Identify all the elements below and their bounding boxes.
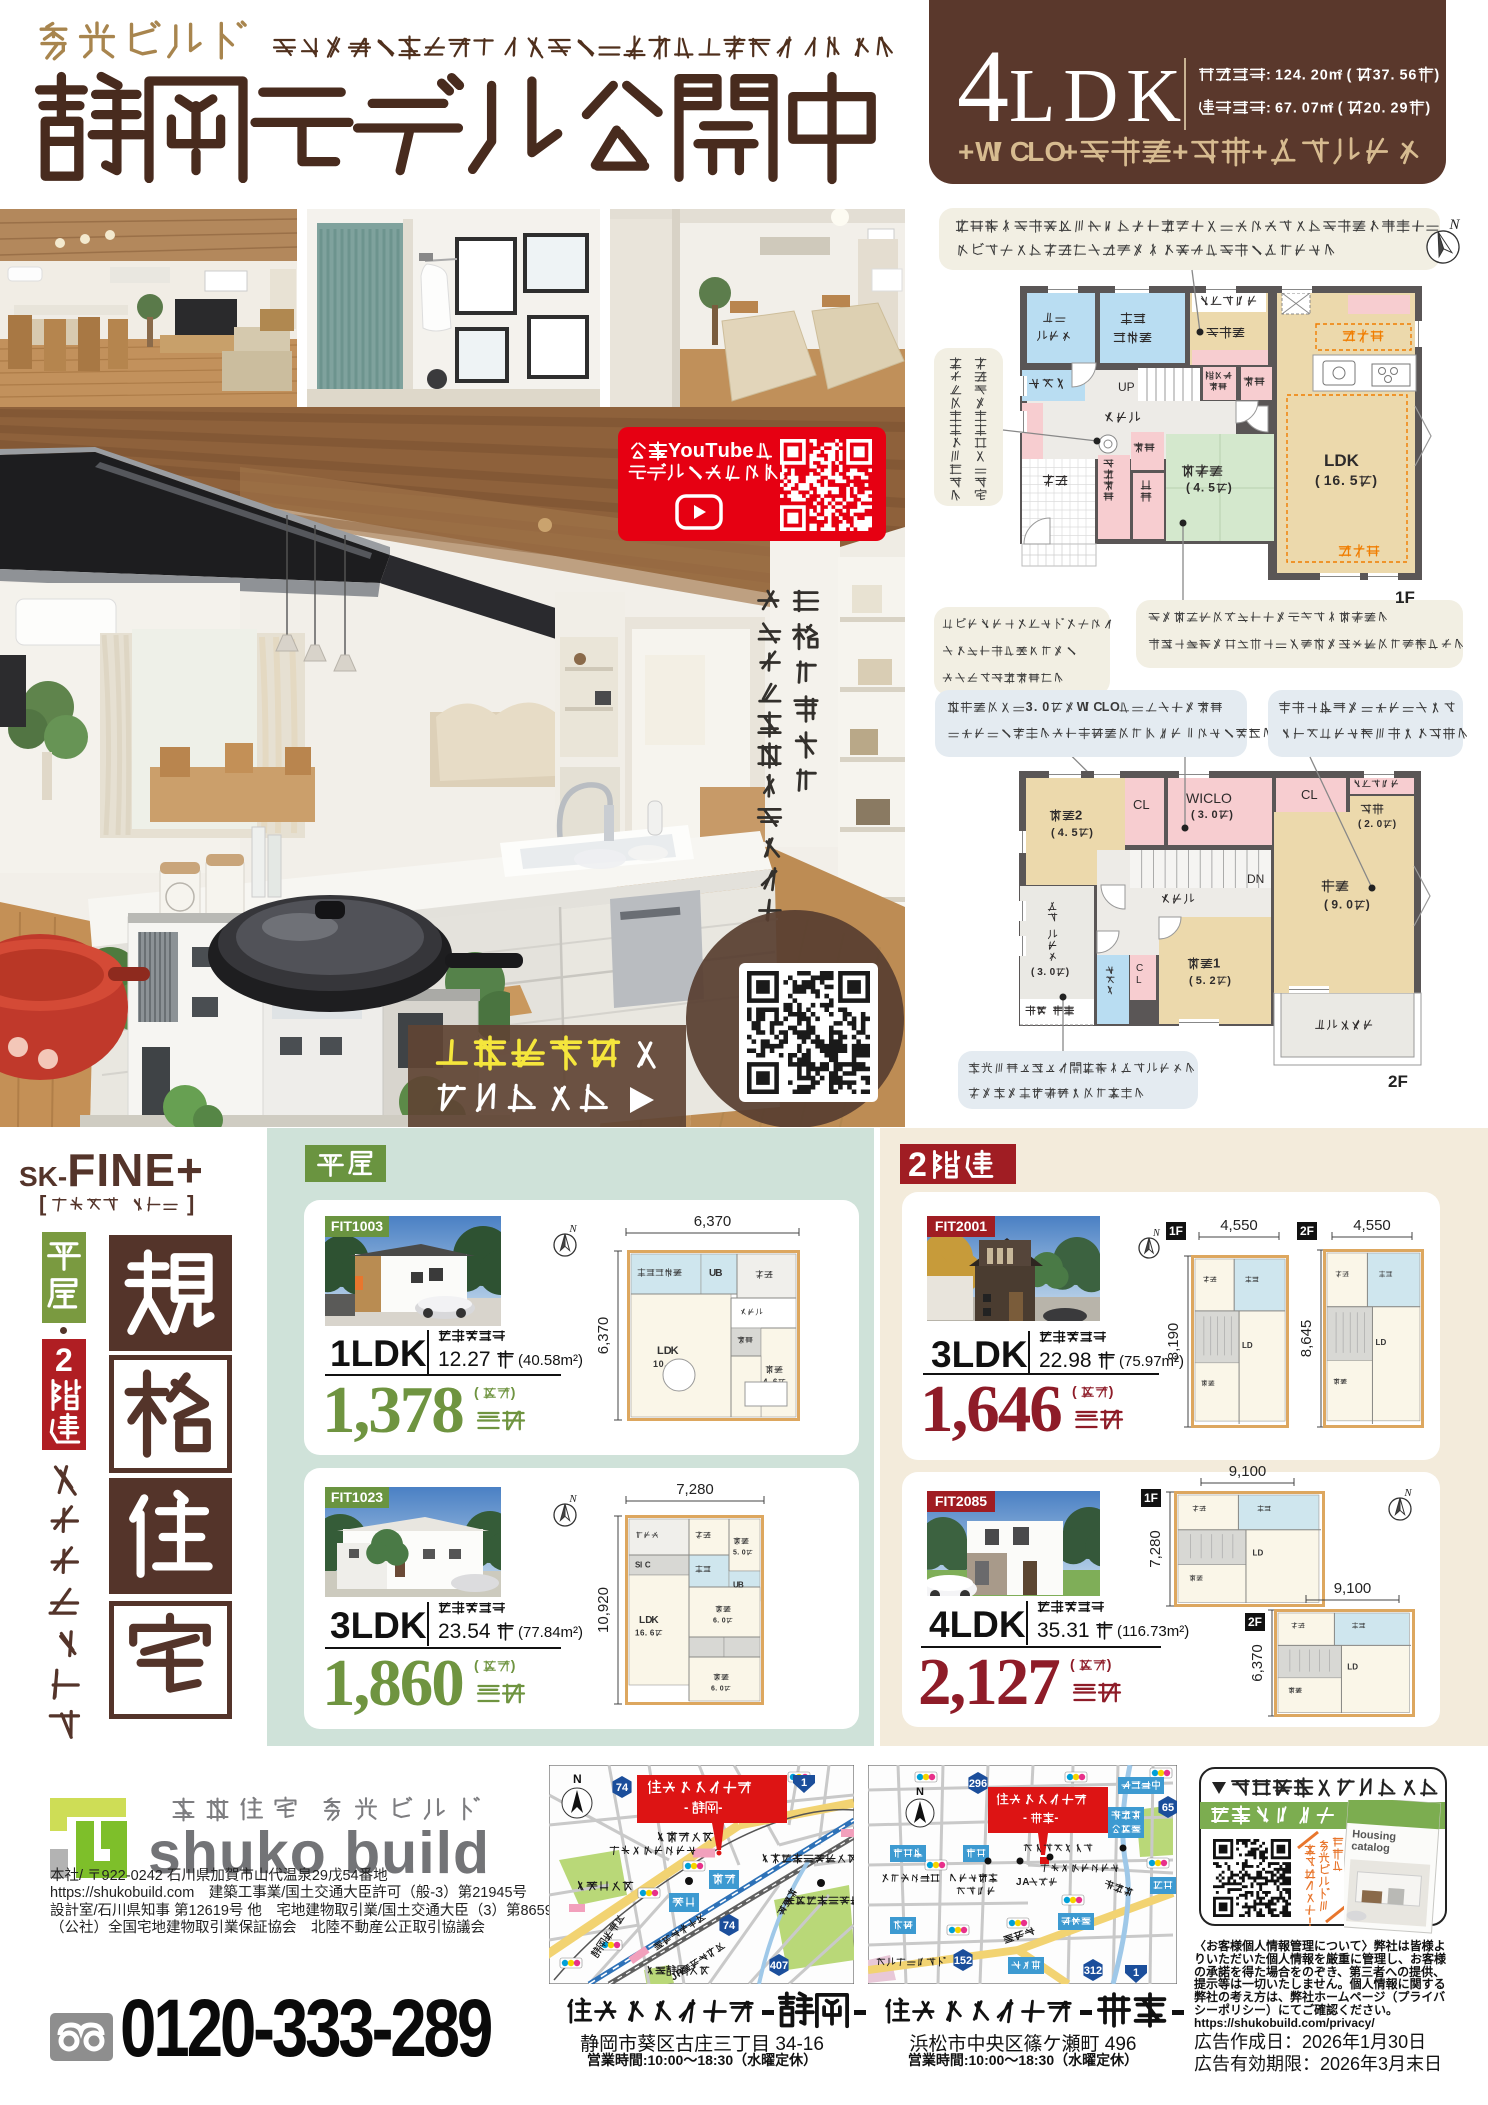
svg-text:0: 0 bbox=[659, 1359, 664, 1369]
svg-text:.: . bbox=[645, 1628, 647, 1637]
svg-text:N: N bbox=[1448, 217, 1460, 233]
svg-text:2: 2 bbox=[1391, 101, 1399, 117]
svg-text:): ) bbox=[1425, 101, 1430, 117]
svg-text:4,550: 4,550 bbox=[1353, 1217, 1391, 1234]
svg-text:D: D bbox=[1247, 1341, 1253, 1350]
svg-text:0: 0 bbox=[1042, 700, 1049, 714]
svg-text:+: + bbox=[1062, 136, 1078, 167]
svg-text:L: L bbox=[639, 1615, 645, 1626]
svg-text:7: 7 bbox=[1311, 101, 1319, 117]
svg-text:.: . bbox=[1339, 898, 1342, 912]
svg-text:.: . bbox=[1302, 68, 1306, 84]
svg-text:.: . bbox=[737, 1550, 739, 1557]
svg-text:74: 74 bbox=[723, 1920, 736, 1932]
svg-text:0: 0 bbox=[1212, 809, 1218, 821]
svg-text:.: . bbox=[1034, 700, 1038, 714]
svg-text:): ) bbox=[1066, 967, 1069, 978]
svg-text:23.54: 23.54 bbox=[438, 1620, 491, 1643]
svg-text:J: J bbox=[1016, 1877, 1022, 1888]
svg-text:): ) bbox=[1107, 1656, 1112, 1672]
svg-text:(: ( bbox=[1347, 68, 1352, 84]
svg-text:N: N bbox=[1403, 1487, 1412, 1499]
svg-text:C: C bbox=[1136, 963, 1143, 974]
svg-text:4: 4 bbox=[1293, 68, 1301, 84]
svg-text:+: + bbox=[1172, 136, 1188, 167]
svg-text:N: N bbox=[568, 1223, 577, 1235]
svg-text:(: ( bbox=[1191, 809, 1195, 821]
svg-text:8,190: 8,190 bbox=[1165, 1323, 1182, 1361]
svg-text:2: 2 bbox=[1311, 68, 1319, 84]
svg-text:8,645: 8,645 bbox=[1298, 1320, 1315, 1358]
svg-text:1: 1 bbox=[1213, 955, 1220, 970]
svg-text:(116.73m²): (116.73m²) bbox=[1117, 1623, 1189, 1640]
svg-text:7,280: 7,280 bbox=[1147, 1530, 1164, 1568]
svg-text:(: ( bbox=[1070, 1656, 1075, 1672]
svg-text:B: B bbox=[715, 1268, 722, 1279]
svg-text:(: ( bbox=[1338, 101, 1343, 117]
svg-text:.: . bbox=[715, 1686, 717, 1693]
svg-text:²: ² bbox=[1329, 101, 1334, 117]
svg-text::: : bbox=[1266, 68, 1271, 84]
svg-text:0: 0 bbox=[1373, 101, 1381, 117]
svg-text:6,370: 6,370 bbox=[595, 1317, 612, 1355]
svg-text:2: 2 bbox=[1284, 68, 1292, 84]
svg-text:0: 0 bbox=[1302, 101, 1310, 117]
svg-text:): ) bbox=[1229, 809, 1233, 821]
svg-text:N: N bbox=[1152, 1228, 1161, 1239]
svg-text:): ) bbox=[1372, 472, 1377, 488]
svg-text:6,370: 6,370 bbox=[1249, 1644, 1266, 1682]
svg-text:K: K bbox=[671, 1345, 679, 1357]
svg-text:N: N bbox=[573, 1772, 582, 1786]
svg-text:u: u bbox=[693, 440, 705, 462]
svg-text:6: 6 bbox=[1332, 472, 1340, 488]
svg-text:9,100: 9,100 bbox=[1334, 1580, 1372, 1597]
svg-text:(: ( bbox=[1324, 898, 1328, 912]
svg-text:]: ] bbox=[187, 1191, 194, 1216]
svg-text:1: 1 bbox=[653, 1359, 658, 1369]
svg-text:): ) bbox=[1228, 481, 1232, 495]
svg-text:3: 3 bbox=[1198, 809, 1204, 821]
svg-text:I: I bbox=[1085, 700, 1089, 714]
svg-text:(: ( bbox=[1051, 827, 1055, 839]
svg-text:+: + bbox=[958, 136, 974, 167]
svg-text:N: N bbox=[568, 1493, 577, 1505]
svg-text:2: 2 bbox=[55, 1342, 73, 1378]
svg-text:0: 0 bbox=[1320, 68, 1328, 84]
svg-text:2: 2 bbox=[1210, 975, 1216, 987]
svg-text::: : bbox=[1266, 101, 1271, 117]
svg-text:L: L bbox=[1136, 975, 1142, 986]
svg-text:-: - bbox=[684, 1799, 688, 1814]
svg-text:(: ( bbox=[1072, 1383, 1077, 1399]
svg-text:5: 5 bbox=[1400, 68, 1408, 84]
svg-text:407: 407 bbox=[770, 1960, 788, 1972]
svg-text:!: ! bbox=[1308, 1915, 1312, 1929]
svg-text:LDK: LDK bbox=[1324, 451, 1360, 470]
svg-text:D: D bbox=[1352, 1662, 1358, 1671]
svg-text:2: 2 bbox=[1075, 807, 1082, 822]
svg-text:1: 1 bbox=[1324, 472, 1332, 488]
svg-text:): ) bbox=[1109, 1383, 1114, 1399]
svg-text:5: 5 bbox=[1196, 975, 1202, 987]
svg-text:0: 0 bbox=[720, 1686, 724, 1693]
svg-text:): ) bbox=[1366, 898, 1370, 912]
svg-text:7: 7 bbox=[1284, 101, 1292, 117]
svg-text:T: T bbox=[705, 440, 717, 462]
svg-text:UP: UP bbox=[1118, 380, 1135, 394]
svg-text:-: - bbox=[1023, 1811, 1027, 1825]
svg-text:e: e bbox=[742, 440, 753, 462]
svg-text:22.98: 22.98 bbox=[1039, 1349, 1092, 1372]
svg-text:-: - bbox=[1054, 1811, 1058, 1825]
svg-text:K: K bbox=[651, 1615, 659, 1626]
svg-text:65: 65 bbox=[1162, 1802, 1174, 1814]
svg-text:(: ( bbox=[1186, 481, 1190, 495]
svg-text:N: N bbox=[916, 1786, 924, 1798]
svg-text:): ) bbox=[511, 1657, 516, 1673]
svg-text:(: ( bbox=[1189, 975, 1193, 987]
svg-text:): ) bbox=[511, 1384, 516, 1400]
svg-text:.: . bbox=[717, 1618, 719, 1625]
svg-text:-: - bbox=[718, 1799, 722, 1814]
svg-text:.: . bbox=[1391, 68, 1395, 84]
svg-text:152: 152 bbox=[954, 1955, 972, 1967]
svg-text:(40.58m²): (40.58m²) bbox=[518, 1352, 583, 1369]
svg-text:1: 1 bbox=[801, 1777, 807, 1789]
svg-text:.: . bbox=[1293, 101, 1297, 117]
svg-text:5: 5 bbox=[1350, 472, 1358, 488]
svg-text:C: C bbox=[645, 1560, 651, 1569]
svg-text:.: . bbox=[1065, 827, 1068, 839]
svg-text:D: D bbox=[1258, 1548, 1264, 1557]
svg-text:6: 6 bbox=[1408, 68, 1416, 84]
svg-text:u: u bbox=[718, 440, 730, 462]
svg-text:12.27: 12.27 bbox=[438, 1348, 491, 1371]
svg-text:.: . bbox=[1043, 967, 1046, 978]
svg-text:0: 0 bbox=[1050, 967, 1056, 978]
svg-text:(: ( bbox=[1315, 472, 1320, 488]
svg-text:6: 6 bbox=[1275, 101, 1283, 117]
svg-text:312: 312 bbox=[1084, 1965, 1102, 1977]
svg-text:+: + bbox=[1251, 136, 1267, 167]
svg-text:L: L bbox=[1027, 136, 1044, 167]
svg-text:3: 3 bbox=[1026, 700, 1033, 714]
svg-text:5: 5 bbox=[1072, 827, 1078, 839]
svg-text:²: ² bbox=[1338, 68, 1343, 84]
svg-text:WICLO: WICLO bbox=[1186, 790, 1232, 806]
svg-text:74: 74 bbox=[616, 1782, 629, 1794]
svg-text:): ) bbox=[1227, 975, 1231, 987]
svg-text:.: . bbox=[1205, 809, 1208, 821]
svg-text:): ) bbox=[1434, 68, 1439, 84]
svg-text:7,280: 7,280 bbox=[676, 1481, 714, 1498]
svg-text:(: ( bbox=[474, 1384, 479, 1400]
svg-text:): ) bbox=[1089, 827, 1093, 839]
svg-text:3: 3 bbox=[1037, 967, 1043, 978]
svg-text:0: 0 bbox=[1346, 898, 1353, 912]
svg-text:2: 2 bbox=[908, 1146, 927, 1184]
svg-text:5: 5 bbox=[1208, 481, 1215, 495]
svg-text:D: D bbox=[1381, 1338, 1387, 1347]
svg-text:b: b bbox=[730, 440, 742, 462]
svg-text:4,550: 4,550 bbox=[1220, 1217, 1258, 1234]
svg-text:(: ( bbox=[474, 1657, 479, 1673]
svg-text:6: 6 bbox=[650, 1628, 655, 1637]
svg-text:296: 296 bbox=[969, 1778, 987, 1790]
svg-text:4: 4 bbox=[1193, 481, 1200, 495]
svg-text:3: 3 bbox=[1373, 68, 1381, 84]
svg-text:9: 9 bbox=[1400, 101, 1408, 117]
svg-text:1: 1 bbox=[1275, 68, 1283, 84]
svg-text:DN: DN bbox=[1247, 872, 1264, 886]
svg-text:): ) bbox=[1393, 819, 1396, 830]
svg-text:I: I bbox=[640, 1560, 642, 1569]
svg-text:6,370: 6,370 bbox=[694, 1213, 732, 1230]
svg-text:CL: CL bbox=[1133, 797, 1150, 812]
svg-text:(77.84m²): (77.84m²) bbox=[518, 1624, 583, 1641]
svg-text:35.31: 35.31 bbox=[1037, 1619, 1090, 1642]
svg-text:10,920: 10,920 bbox=[595, 1587, 612, 1633]
svg-text:0: 0 bbox=[1377, 819, 1383, 830]
svg-text:O: O bbox=[1110, 700, 1120, 714]
svg-text:9: 9 bbox=[1331, 898, 1338, 912]
svg-text:.: . bbox=[1341, 472, 1345, 488]
svg-text:9,100: 9,100 bbox=[1229, 1463, 1267, 1480]
svg-text:L: L bbox=[1102, 700, 1110, 714]
svg-text:.: . bbox=[1203, 975, 1206, 987]
svg-text:1: 1 bbox=[1133, 1967, 1139, 1979]
svg-text:[: [ bbox=[39, 1191, 47, 1216]
svg-text:A: A bbox=[1022, 1877, 1029, 1888]
svg-text:0: 0 bbox=[722, 1618, 726, 1625]
svg-text:o: o bbox=[680, 440, 692, 462]
svg-text:0: 0 bbox=[742, 1550, 746, 1557]
svg-text:.: . bbox=[1382, 101, 1386, 117]
svg-text:I: I bbox=[993, 136, 1001, 167]
svg-text:2: 2 bbox=[1364, 101, 1372, 117]
svg-text:B: B bbox=[738, 1580, 744, 1589]
svg-text:.: . bbox=[1201, 481, 1204, 495]
svg-text:7: 7 bbox=[1382, 68, 1390, 84]
